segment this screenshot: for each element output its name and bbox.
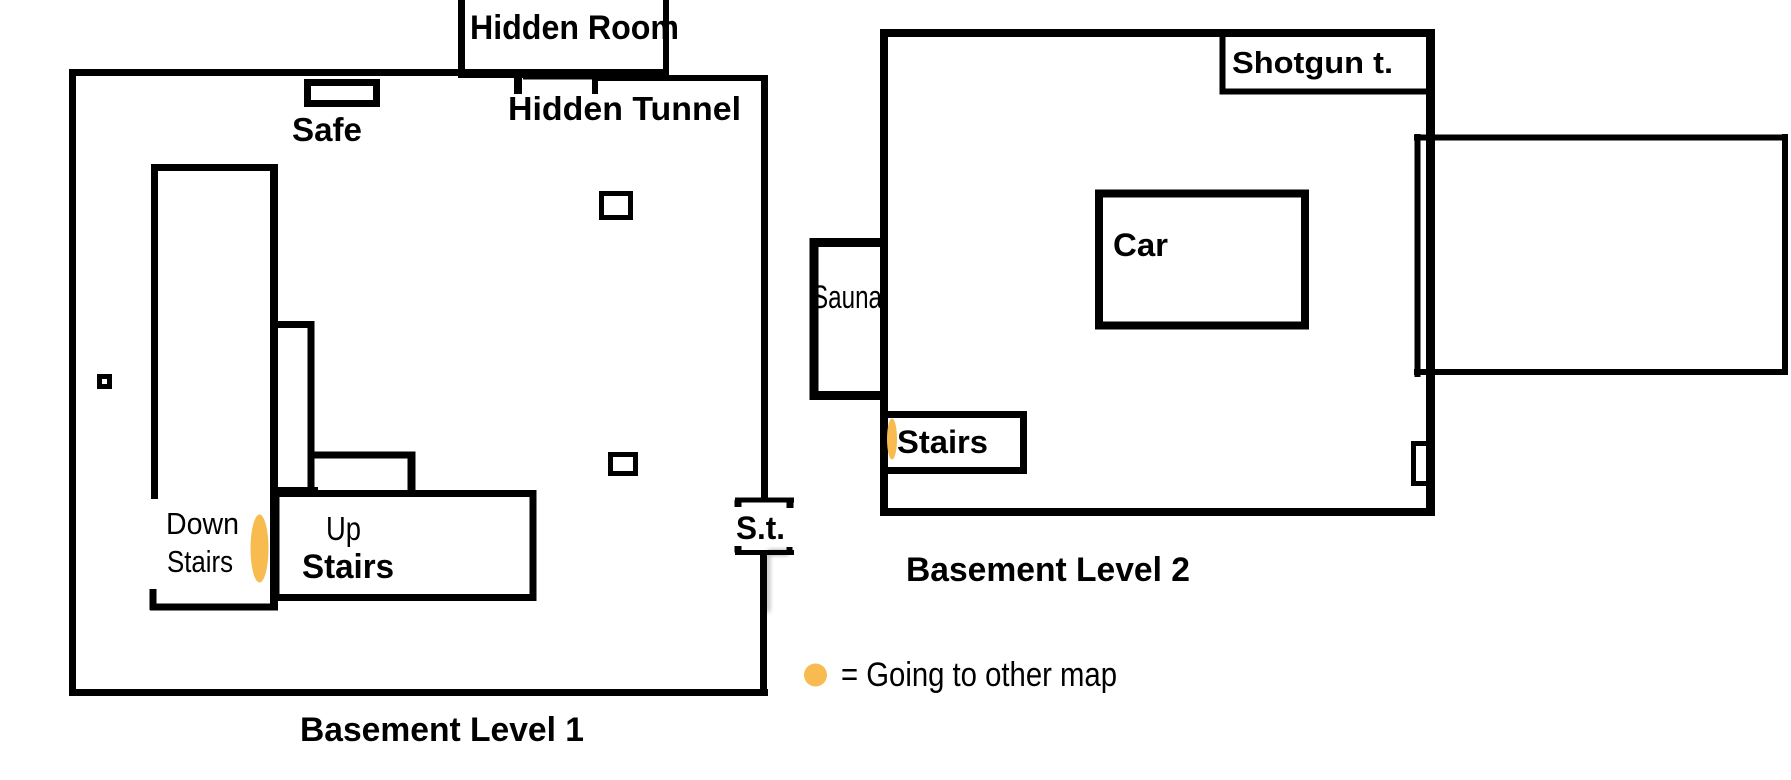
svg-text:Car: Car (1113, 227, 1168, 263)
svg-text:Hidden Tunnel: Hidden Tunnel (508, 90, 741, 127)
svg-text:Basement Level 2: Basement Level 2 (906, 551, 1190, 589)
svg-text:Hidden Room: Hidden Room (470, 9, 679, 47)
svg-text:Up: Up (326, 510, 361, 547)
svg-text:Stairs: Stairs (897, 424, 988, 460)
svg-text:Shotgun t.: Shotgun t. (1232, 45, 1393, 80)
svg-text:= Going to other map: = Going to other map (841, 656, 1117, 694)
svg-text:Sauna: Sauna (812, 279, 882, 315)
svg-text:Stairs: Stairs (167, 544, 233, 579)
svg-text:Stairs: Stairs (302, 548, 394, 586)
svg-text:Down: Down (166, 506, 239, 541)
svg-text:S.t.: S.t. (736, 510, 785, 546)
svg-text:Basement Level 1: Basement Level 1 (300, 711, 584, 749)
svg-text:Safe: Safe (292, 111, 362, 148)
